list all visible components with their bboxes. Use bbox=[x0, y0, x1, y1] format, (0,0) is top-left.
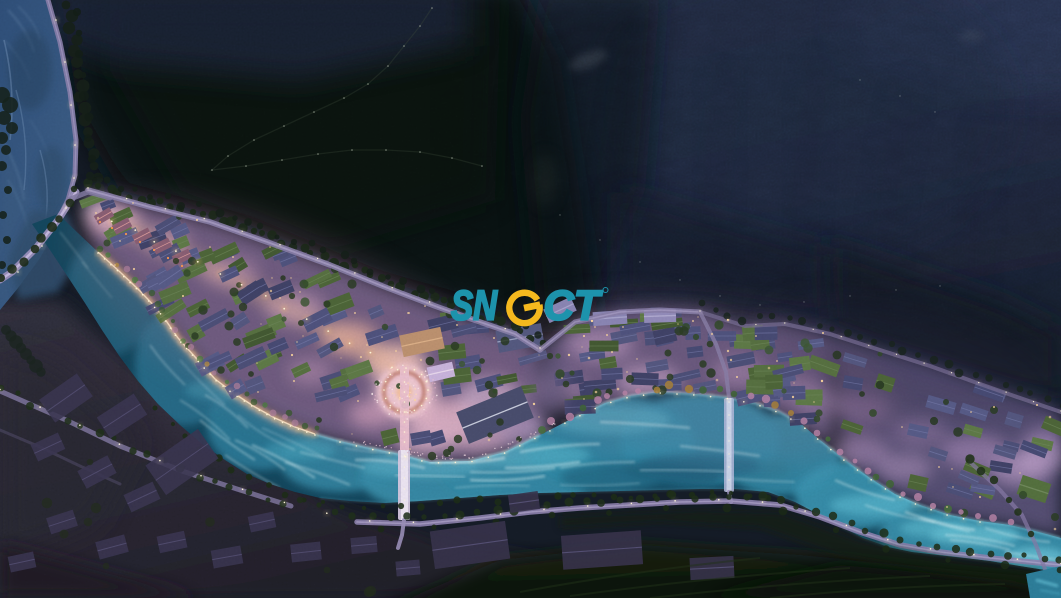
svg-text:SN: SN bbox=[451, 282, 498, 329]
svg-text:CT: CT bbox=[544, 282, 603, 329]
